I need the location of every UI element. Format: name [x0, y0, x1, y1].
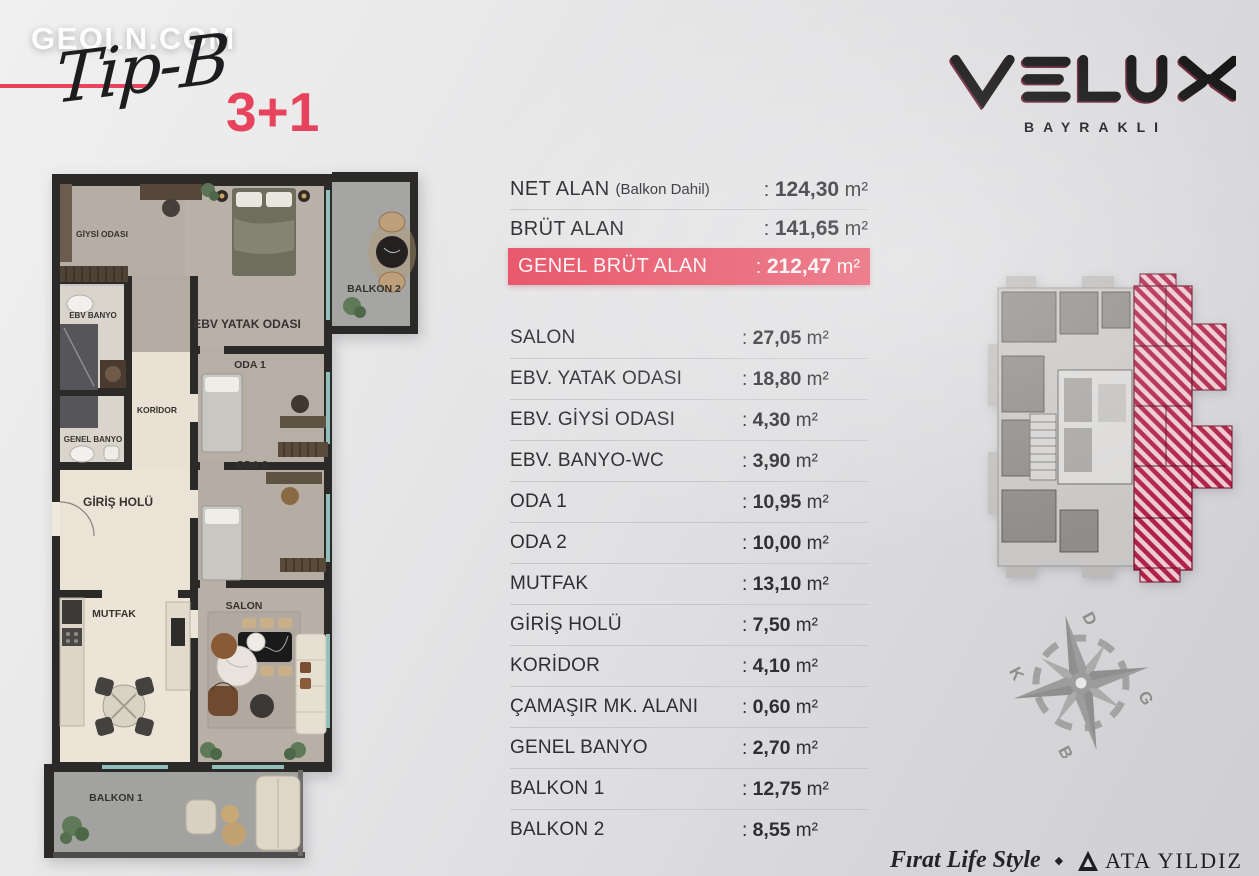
room-label: GİRİŞ HOLÜ [83, 494, 153, 509]
summary-note: (Balkon Dahil) [616, 181, 710, 198]
room-label: KORİDOR [137, 405, 177, 415]
room-name: SALON [510, 327, 575, 349]
room-area-value: : 18,80 m² [742, 368, 829, 391]
room-area-row: ODA 2: 10,00 m² [510, 523, 868, 564]
room-area-value: : 2,70 m² [742, 737, 818, 760]
room-area-row: ÇAMAŞIR MK. ALANI: 0,60 m² [510, 687, 868, 728]
room-area-value: : 8,55 m² [742, 819, 818, 842]
room-label: BALKON 1 [89, 792, 143, 804]
brand-subtitle: BAYRAKLI [946, 119, 1236, 135]
room-area-row: ODA 1: 10,95 m² [510, 482, 868, 523]
floorplan-drawing: GİYSİ ODASI EBV YATAK ODASI BALKON 2 EBV… [40, 166, 425, 866]
ata-yildiz-logo: ATA YILDIZ [1077, 848, 1243, 874]
room-name: ÇAMAŞIR MK. ALANI [510, 696, 698, 718]
room-area-value: : 10,00 m² [742, 532, 829, 555]
room-label: GENEL BANYO [64, 435, 123, 444]
summary-label: NET ALAN [510, 178, 610, 201]
flyer-canvas: GEOLN.COM Tip-B 3+1 BAYRAKLI [0, 0, 1259, 876]
diamond-separator-icon: ◆ [1055, 854, 1063, 867]
summary-value: : 124,30 m² [764, 178, 868, 202]
room-area-row: MUTFAK: 13,10 m² [510, 564, 868, 605]
ata-yildiz-triangle-icon [1077, 850, 1099, 872]
compass-letter-g: G [1134, 688, 1156, 709]
compass-rose-icon: D K G B [1006, 608, 1156, 758]
summary-row-brut: BRÜT ALAN : 141,65 m² [510, 210, 868, 248]
room-name: BALKON 2 [510, 819, 605, 841]
footer-logos: Fırat Life Style ◆ ATA YILDIZ [890, 847, 1246, 874]
room-area-value: : 0,60 m² [742, 696, 818, 719]
room-area-row: EBV. GİYSİ ODASI: 4,30 m² [510, 400, 868, 441]
room-name: MUTFAK [510, 573, 588, 595]
room-area-value: : 27,05 m² [742, 327, 829, 350]
room-area-row: KORİDOR: 4,10 m² [510, 646, 868, 687]
room-name: EBV. YATAK ODASI [510, 368, 682, 390]
room-name: ODA 1 [510, 491, 567, 513]
room-area-value: : 4,30 m² [742, 409, 818, 432]
room-label: ODA 2 [236, 459, 268, 471]
summary-value: : 141,65 m² [764, 217, 868, 241]
room-name: GENEL BANYO [510, 737, 648, 759]
room-area-value: : 7,50 m² [742, 614, 818, 637]
room-label: ODA 1 [234, 359, 266, 371]
velux-logo-icon [946, 48, 1236, 110]
highlighted-unit-zone [1134, 274, 1232, 582]
room-label: GİYSİ ODASI [76, 229, 128, 239]
keyplan-locator [984, 266, 1256, 588]
summary-row-genel-brut-highlight: GENEL BRÜT ALAN : 212,47 m² [508, 248, 870, 285]
room-label: EBV YATAK ODASI [193, 317, 301, 331]
room-area-value: : 3,90 m² [742, 450, 818, 473]
room-name: KORİDOR [510, 655, 600, 677]
room-area-value: : 12,75 m² [742, 778, 829, 801]
firat-life-style-logo: Fırat Life Style [890, 847, 1041, 874]
room-area-row: EBV. BANYO-WC: 3,90 m² [510, 441, 868, 482]
room-name: EBV. BANYO-WC [510, 450, 664, 472]
room-name: BALKON 1 [510, 778, 605, 800]
room-area-list: SALON: 27,05 m²EBV. YATAK ODASI: 18,80 m… [510, 318, 868, 850]
compass-letter-k: K [1006, 664, 1028, 684]
room-area-value: : 4,10 m² [742, 655, 818, 678]
room-area-row: BALKON 2: 8,55 m² [510, 810, 868, 850]
room-area-row: GENEL BANYO: 2,70 m² [510, 728, 868, 769]
room-label: SALON [226, 600, 263, 612]
room-area-row: BALKON 1: 12,75 m² [510, 769, 868, 810]
room-label: MUTFAK [92, 608, 136, 620]
room-label: BALKON 2 [347, 283, 401, 295]
room-area-row: GİRİŞ HOLÜ: 7,50 m² [510, 605, 868, 646]
room-name: ODA 2 [510, 532, 567, 554]
summary-label: BRÜT ALAN [510, 218, 624, 241]
brand-logo: BAYRAKLI [946, 48, 1236, 135]
room-label: EBV BANYO [69, 311, 117, 320]
area-table: NET ALAN (Balkon Dahil) : 124,30 m² BRÜT… [510, 170, 868, 850]
summary-row-net: NET ALAN (Balkon Dahil) : 124,30 m² [510, 170, 868, 210]
room-area-value: : 13,10 m² [742, 573, 829, 596]
compass-letter-b: B [1054, 743, 1077, 758]
room-area-value: : 10,95 m² [742, 491, 829, 514]
room-name: EBV. GİYSİ ODASI [510, 409, 675, 431]
room-area-row: SALON: 27,05 m² [510, 318, 868, 359]
compass-letter-d: D [1078, 609, 1101, 629]
room-area-row: EBV. YATAK ODASI: 18,80 m² [510, 359, 868, 400]
summary-label: GENEL BRÜT ALAN [518, 255, 707, 278]
summary-value: : 212,47 m² [756, 255, 860, 279]
room-name: GİRİŞ HOLÜ [510, 614, 622, 636]
rooms-count-badge: 3+1 [226, 80, 319, 144]
